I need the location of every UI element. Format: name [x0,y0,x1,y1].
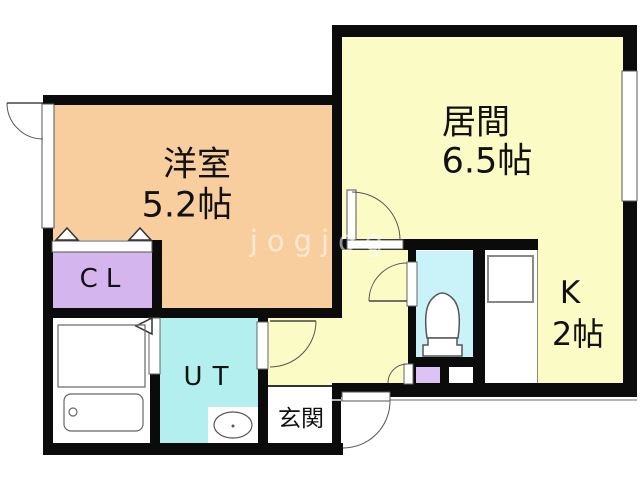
ut-door-opening [257,322,268,369]
entrance-door-leaf [342,392,390,401]
room-size-yoshitsu: 5.2帖 [142,177,233,228]
room-label-genkan: 玄関 [278,399,324,433]
entrance-door-swing-arc [343,401,390,448]
closet-door-triangle-right [129,228,151,240]
toilet-door-swing-arc [369,263,407,301]
closet-door-triangle-left [56,228,78,240]
watermark-text: jogjog [250,224,392,258]
room-label-kitchen: K [560,275,580,311]
window-east [622,71,637,201]
room-size-kitchen: 2帖 [552,309,604,355]
ut-door-swing-arc [270,321,316,367]
kitchen-sink-unit [488,256,533,302]
room-label-closet: CL [80,264,129,294]
toilet-tank [423,338,462,356]
closet-sliding-door [52,241,152,252]
storage-door-leaf [404,364,413,384]
window-west [42,104,54,228]
toilet-icon [426,293,460,338]
toilet-door-opening [407,262,417,306]
room-label-utility: UT [184,362,239,392]
sink-drain-dot [232,425,235,428]
balcony-door-swing-arc [7,103,43,139]
bathtub-icon [64,394,143,431]
bath-door-triangle [136,318,152,334]
floorplan-canvas: 洋室 5.2帖 居間 6.5帖 K 2帖 CL UT 玄関 jogjog [0,0,640,480]
room-size-ima: 6.5帖 [442,133,533,184]
shower-pan [58,325,145,387]
